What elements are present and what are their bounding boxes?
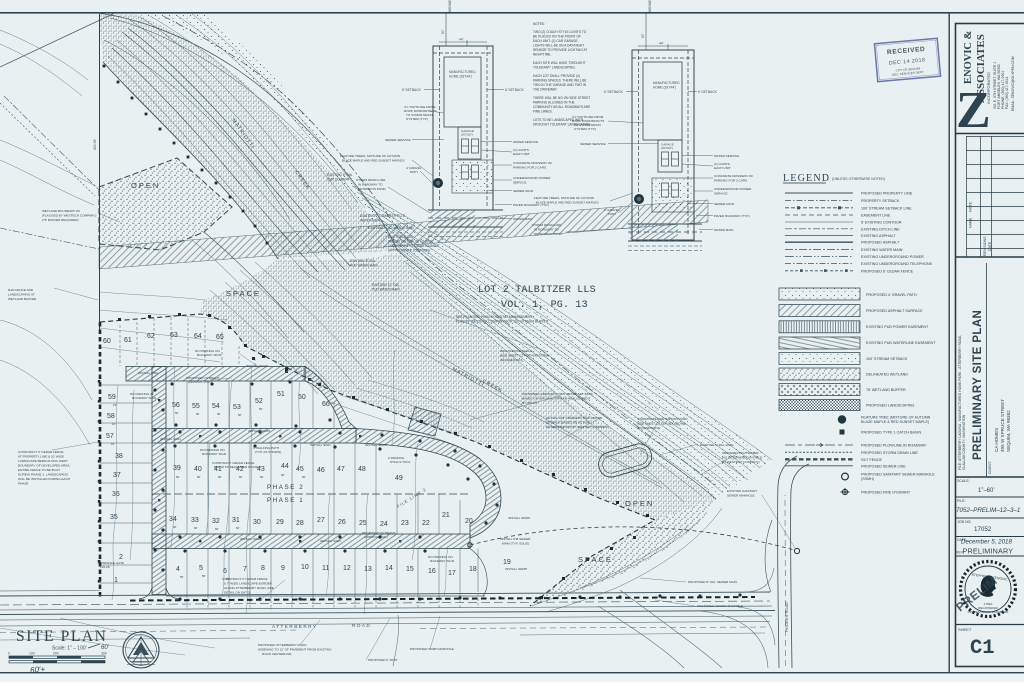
svg-text:50': 50': [217, 412, 221, 416]
svg-text:60': 60': [194, 526, 198, 530]
svg-text:STALLS TOOL: STALLS TOOL: [390, 460, 411, 464]
svg-text:17: 17: [448, 570, 456, 577]
svg-text:INSTALL 8"Ø SEWER: INSTALL 8"Ø SEWER: [500, 537, 531, 541]
svg-text:FIRE LANES.: FIRE LANES.: [533, 110, 553, 114]
svg-text:SITE PLAN: SITE PLAN: [16, 628, 107, 645]
svg-text:HOME (28'X44'): HOME (28'X44'): [653, 86, 676, 90]
svg-text:NIGHTTIME.: NIGHTTIME.: [533, 53, 552, 57]
svg-text:HOOKER ROAD: HOOKER ROAD: [784, 602, 789, 632]
svg-text:PROPOSED FIRE HYDRANT: PROPOSED FIRE HYDRANT: [861, 491, 911, 495]
svg-text:17052: 17052: [974, 526, 992, 533]
svg-text:6' SETBACK: 6' SETBACK: [604, 90, 624, 94]
svg-text:BLAZE MAPLE AND RED SUNSET MAP: BLAZE MAPLE AND RED SUNSET MAPLES: [536, 201, 599, 205]
svg-text:BLAZE MAPLE AND RED SUNSET MAP: BLAZE MAPLE AND RED SUNSET MAPLES: [342, 159, 405, 163]
svg-text:PROPOSED 4' GRAVEL PATH: PROPOSED 4' GRAVEL PATH: [866, 293, 917, 297]
svg-text:EXISTING UNDERGROUND POWER: EXISTING UNDERGROUND POWER: [861, 255, 924, 259]
svg-text:INSTALL SDMH: INSTALL SDMH: [508, 516, 530, 520]
svg-text:PRIOR TO DECEMBER PHASE 2: PRIOR TO DECEMBER PHASE 2: [214, 465, 261, 469]
svg-text:15': 15': [112, 422, 116, 426]
svg-text:THE DRIVEWAY.: THE DRIVEWAY.: [533, 88, 558, 92]
svg-text:PARKING FOR 2 CARS: PARKING FOR 2 CARS: [513, 166, 546, 170]
svg-text:HOME (28'X44'): HOME (28'X44'): [449, 75, 472, 79]
svg-text:60': 60': [236, 526, 240, 530]
svg-text:44: 44: [281, 463, 289, 470]
svg-text:5' EXISTING CONTOUR: 5' EXISTING CONTOUR: [861, 221, 902, 225]
svg-text:SERVICE: SERVICE: [714, 192, 728, 196]
svg-text:60': 60': [197, 475, 201, 479]
svg-text:TOLERANT" LANDSCAPING.: TOLERANT" LANDSCAPING.: [533, 66, 576, 70]
svg-text:WETLAND BOUNDARY #3: WETLAND BOUNDARY #3: [42, 209, 80, 213]
svg-text:18: 18: [469, 566, 477, 573]
svg-text:STORMWATER DETENTION POND: STORMWATER DETENTION POND: [637, 417, 688, 421]
svg-text:47: 47: [337, 466, 345, 473]
svg-text:1”–60’: 1”–60’: [978, 488, 995, 494]
svg-text:INFORMATION): INFORMATION): [500, 358, 522, 362]
svg-text:19: 19: [503, 559, 511, 566]
svg-text:IN ROADWAY TO: IN ROADWAY TO: [358, 183, 383, 187]
svg-text:BY VROUT: BY VROUT: [522, 401, 538, 405]
svg-text:UNDERGROUND POWER: UNDERGROUND POWER: [714, 187, 752, 191]
svg-text:15: 15: [406, 566, 414, 573]
svg-text:EXISTING SANITARY: EXISTING SANITARY: [727, 489, 758, 493]
svg-text:44': 44': [459, 38, 464, 42]
svg-text:9: 9: [281, 565, 285, 572]
svg-text:CLIENT:: CLIENT:: [988, 461, 992, 474]
svg-text:DELINEATED WETLAND: DELINEATED WETLAND: [866, 373, 908, 377]
svg-text:TWO IN THE GARAGE AND TWO IN: TWO IN THE GARAGE AND TWO IN: [533, 83, 587, 87]
svg-text:4: 4: [176, 566, 180, 573]
svg-text:55': 55': [202, 574, 206, 578]
svg-text:20: 20: [465, 518, 473, 525]
svg-text:38: 38: [115, 453, 123, 460]
svg-text:EACH SITE WILL HAVE "DROUGHT: EACH SITE WILL HAVE "DROUGHT: [533, 61, 586, 65]
svg-text:54: 54: [212, 403, 220, 410]
svg-text:495 W SPRUCE STREET: 495 W SPRUCE STREET: [1000, 399, 1005, 452]
svg-text:PROPOSED LANDSCAPING: PROPOSED LANDSCAPING: [866, 404, 914, 408]
svg-text:60': 60': [173, 525, 177, 529]
svg-text:30: 30: [253, 519, 261, 526]
svg-text:PATH: PATH: [410, 170, 418, 174]
svg-text:SEWER SERVICE: SEWER SERVICE: [580, 142, 606, 146]
svg-text:CONSTRUCT 6' CEDAR FENCE: CONSTRUCT 6' CEDAR FENCE: [222, 577, 268, 581]
svg-text:49: 49: [395, 475, 403, 482]
svg-text:10: 10: [301, 564, 309, 571]
svg-text:40: 40: [194, 466, 202, 473]
svg-text:ACTUAL 100' ORDINARY HIGH WATE: ACTUAL 100' ORDINARY HIGH WATER: [546, 416, 603, 420]
svg-text:28: 28: [296, 520, 304, 527]
svg-text:60': 60': [441, 29, 445, 34]
svg-text:0: 0: [8, 652, 10, 656]
svg-text:50': 50': [196, 412, 200, 416]
svg-text:OPEN: OPEN: [625, 499, 654, 508]
svg-text:(UNLESS OTHERWISE NOTED): (UNLESS OTHERWISE NOTED): [832, 177, 885, 181]
svg-text:PROPOSED 6' CEDAR FENCE: PROPOSED 6' CEDAR FENCE: [861, 269, 914, 273]
svg-text:60': 60': [239, 475, 243, 479]
svg-text:(SSMH): (SSMH): [861, 477, 874, 481]
svg-text:29: 29: [276, 519, 284, 526]
svg-text:BOUNDARY OF DEVELOPED AREA.: BOUNDARY OF DEVELOPED AREA.: [18, 464, 70, 468]
svg-text:60': 60': [101, 645, 110, 651]
svg-text:INFILTRATION SWALE: INFILTRATION SWALE: [500, 349, 532, 353]
svg-text:6' SETBACK: 6' SETBACK: [505, 88, 525, 92]
svg-text:PARKING FOR 2 CARS: PARKING FOR 2 CARS: [714, 179, 747, 183]
svg-text:& 7' WIDE LANDSCAPE BORDER: & 7' WIDE LANDSCAPE BORDER: [224, 582, 273, 586]
svg-text:60': 60': [218, 475, 222, 479]
svg-text:ROADWAY SIGN: ROADWAY SIGN: [197, 353, 221, 357]
svg-text:SPACE: SPACE: [226, 289, 261, 298]
svg-text:(APPROX. LOC.): (APPROX. LOC.): [188, 380, 212, 384]
svg-text:60': 60': [260, 475, 264, 479]
svg-text:SENSOR TO PROVIDE LIGHTING AT: SENSOR TO PROVIDE LIGHTING AT: [533, 48, 587, 52]
svg-text:12: 12: [343, 565, 351, 572]
svg-text:PRELIMINARY SITE PLAN: PRELIMINARY SITE PLAN: [972, 310, 984, 460]
svg-text:BLAZE MAPLE & RED SUNSET MAPLE: BLAZE MAPLE & RED SUNSET MAPLE): [861, 420, 929, 424]
svg-text:7052–PRELIM–12–3–1: 7052–PRELIM–12–3–1: [956, 507, 1020, 514]
svg-text:WIDENING TO 12' OF PAVEMENT FR: WIDENING TO 12' OF PAVEMENT FROM EXISTIN…: [258, 648, 332, 652]
svg-text:EACH UNIT. (1) CAR GARAGE.: EACH UNIT. (1) CAR GARAGE.: [533, 39, 579, 43]
svg-text:66: 66: [322, 401, 330, 408]
svg-text:100' STREAM SETBACK: 100' STREAM SETBACK: [866, 357, 908, 361]
svg-text:PROPOSED SANITARY SEWER MANHOL: PROPOSED SANITARY SEWER MANHOLE: [861, 473, 935, 477]
svg-text:36: 36: [112, 491, 120, 498]
svg-text:LEGEND: LEGEND: [783, 173, 830, 184]
svg-text:WATER SERVICE: WATER SERVICE: [714, 154, 739, 158]
svg-text:SEWER MAIN: SEWER MAIN: [513, 189, 533, 193]
svg-text:INSTALL SDMH: INSTALL SDMH: [365, 443, 387, 447]
svg-text:60: 60: [103, 338, 111, 345]
svg-text:300: 300: [101, 652, 107, 656]
svg-text:PROPOSED ASPHALT: PROPOSED ASPHALT: [861, 241, 900, 245]
svg-text:ALONG ATTERBERRY ROAD (SEE: ALONG ATTERBERRY ROAD (SEE: [224, 586, 274, 590]
svg-text:COMMUNITY AS ALL ROADWAYS ARE: COMMUNITY AS ALL ROADWAYS ARE: [533, 105, 590, 109]
svg-text:BY WESTECH COMPANY): BY WESTECH COMPANY): [722, 460, 760, 464]
svg-text:PRELIMINARY: PRELIMINARY: [963, 547, 1014, 556]
svg-text:SEWER MANHOLE: SEWER MANHOLE: [727, 494, 755, 498]
svg-text:24: 24: [380, 521, 388, 528]
svg-text:430.59': 430.59': [93, 139, 97, 150]
svg-text:PHASE 1: PHASE 1: [267, 497, 304, 504]
svg-text:60': 60': [281, 473, 285, 477]
svg-text:PROPOSED 8" DIA. SEWER MAIN: PROPOSED 8" DIA. SEWER MAIN: [688, 580, 737, 584]
svg-text:(20'X20'): (20'X20'): [461, 133, 473, 137]
svg-text:27: 27: [317, 517, 325, 524]
svg-text:PROPOSED SEWER LINE: PROPOSED SEWER LINE: [861, 464, 906, 468]
svg-text:INCORPORATED: INCORPORATED: [986, 72, 991, 104]
svg-text:LOTS TO BE LANDSCAPED WITH: LOTS TO BE LANDSCAPED WITH: [533, 118, 584, 122]
svg-text:50': 50': [238, 413, 242, 417]
svg-text:INSTALL SIGN: INSTALL SIGN: [310, 443, 331, 447]
svg-text:EASEMENT LINE: EASEMENT LINE: [861, 214, 891, 218]
svg-text:31: 31: [232, 517, 240, 524]
svg-text:EXISTING PUD WATERLINE EASEMEN: EXISTING PUD WATERLINE EASEMENT: [866, 341, 936, 345]
svg-text:LANDSCAPING AT: LANDSCAPING AT: [8, 293, 35, 297]
svg-text:PHASE 2: PHASE 2: [267, 484, 304, 491]
svg-text:55': 55': [180, 575, 184, 579]
svg-text:(SEE SHEET C2 FOR ADDITIONAL: (SEE SHEET C2 FOR ADDITIONAL: [500, 354, 550, 358]
svg-text:46: 46: [317, 467, 325, 474]
svg-text:64: 64: [194, 333, 202, 340]
svg-text:34: 34: [169, 516, 177, 523]
svg-text:CONSTRUCT 6' CEDAR FENCE: CONSTRUCT 6' CEDAR FENCE: [18, 450, 64, 454]
svg-text:FEATURE TREES, MIXTURE OF AUTU: FEATURE TREES, MIXTURE OF AUTUMN: [340, 154, 400, 158]
svg-text:50': 50': [259, 407, 263, 411]
svg-text:MANUFACTURED: MANUFACTURED: [653, 81, 680, 85]
svg-text:NOTES:: NOTES:: [533, 22, 545, 26]
svg-text:51: 51: [277, 391, 285, 398]
svg-text:56: 56: [172, 402, 180, 409]
svg-text:EXISTING 5" DIA. CMP: EXISTING 5" DIA. CMP: [700, 443, 733, 447]
svg-text:35: 35: [110, 514, 118, 521]
svg-text:15': 15': [111, 442, 115, 446]
svg-text:ENTIRE FENCE TO BE BUILT: ENTIRE FENCE TO BE BUILT: [18, 468, 60, 472]
svg-text:7: 7: [243, 566, 247, 573]
svg-text:PARKING ALLOWED IN THE: PARKING ALLOWED IN THE: [533, 101, 575, 105]
svg-text:CLALLAM COUNTY, WASHINGTON: CLALLAM COUNTY, WASHINGTON: [962, 414, 966, 470]
svg-text:PROPOSED SDMH MANHOLE: PROPOSED SDMH MANHOLE: [410, 647, 454, 651]
svg-text:PROPOSED PLOWLINE IN ROADWAY: PROPOSED PLOWLINE IN ROADWAY: [861, 444, 927, 448]
svg-text:PAVED ROADWAY (TYP.): PAVED ROADWAY (TYP.): [714, 214, 750, 218]
svg-text:8: 8: [261, 565, 265, 572]
svg-text:OPEN: OPEN: [131, 181, 160, 190]
svg-text:EXISTING PUD POWER EASEMENT: EXISTING PUD POWER EASEMENT: [866, 325, 929, 329]
svg-text:1: 1: [114, 577, 118, 584]
svg-text:PROPOSED ORDINARY HIGH WATER S: PROPOSED ORDINARY HIGH WATER SET BACK: [522, 392, 594, 396]
svg-text:55: 55: [192, 403, 200, 410]
svg-text:63: 63: [170, 332, 178, 339]
svg-text:44': 44': [659, 42, 664, 46]
svg-text:INSTALL SIGN: INSTALL SIGN: [160, 437, 181, 441]
svg-text:ORDINARY HIGH WATER: ORDINARY HIGH WATER: [722, 451, 759, 455]
svg-text:PROPERTY SETBACK: PROPERTY SETBACK: [861, 199, 900, 203]
svg-text:TWO (2) COACH STYLE LIGHTS TO: TWO (2) COACH STYLE LIGHTS TO: [533, 30, 587, 34]
svg-text:PROPOSED STORM DRAIN LINE: PROPOSED STORM DRAIN LINE: [861, 451, 918, 455]
svg-text:LIGHTS WILL BE ON A DAY/NIGHT: LIGHTS WILL BE ON A DAY/NIGHT: [533, 44, 584, 48]
svg-text:UNDERGROUND POWER: UNDERGROUND POWER: [513, 176, 551, 180]
svg-text:58: 58: [107, 413, 115, 420]
svg-text:15': 15': [113, 403, 117, 407]
svg-text:WILL BE INSTALLED DURING EACH: WILL BE INSTALLED DURING EACH: [18, 477, 70, 481]
svg-text:EXISTING UNDERGROUND TELEPHONE: EXISTING UNDERGROUND TELEPHONE: [861, 262, 933, 266]
svg-text:MAIN (TYP. SOLID): MAIN (TYP. SOLID): [502, 542, 529, 546]
svg-text:SEQUIM, WA 98382: SEQUIM, WA 98382: [1006, 410, 1011, 452]
svg-text:16: 16: [428, 568, 436, 575]
svg-text:22: 22: [422, 520, 430, 527]
svg-text:WATER SERVICE: WATER SERVICE: [513, 140, 538, 144]
svg-text:INSTALL SDMH: INSTALL SDMH: [505, 567, 527, 571]
svg-text:FAX: (360) 417-0514: FAX: (360) 417-0514: [1005, 76, 1009, 109]
svg-text:62: 62: [147, 333, 155, 340]
svg-text:33: 33: [191, 517, 199, 524]
svg-text:100' STREAM SETBACK LINE: 100' STREAM SETBACK LINE: [861, 206, 912, 210]
svg-text:LANDSCAPE BERM ALONG WEST: LANDSCAPE BERM ALONG WEST: [18, 459, 68, 463]
svg-text:SERVICE: SERVICE: [513, 181, 527, 185]
svg-text:INSTALL 5300: INSTALL 5300: [138, 371, 158, 375]
svg-text:PROPOSED 5' PATH: PROPOSED 5' PATH: [368, 658, 397, 662]
svg-text:32: 32: [212, 518, 220, 525]
svg-text:DETAIL ON SHT 3): DETAIL ON SHT 3): [224, 591, 251, 595]
svg-text:5' SETBACK: 5' SETBACK: [402, 88, 422, 92]
svg-text:FEATURE TREE (MIXTURE OF AUTUM: FEATURE TREE (MIXTURE OF AUTUMN: [861, 416, 931, 420]
svg-text:FEATURE TREES, MIXTURE OF AUTU: FEATURE TREES, MIXTURE OF AUTUMN: [534, 196, 594, 200]
svg-text:EACH UNIT: EACH UNIT: [714, 166, 731, 170]
svg-text:(FLAGGED BY WESTECH COMPANY): (FLAGGED BY WESTECH COMPANY): [42, 214, 96, 218]
svg-text:PHASE: PHASE: [18, 482, 29, 486]
svg-text:23: 23: [401, 520, 409, 527]
svg-text:SPACE: SPACE: [578, 555, 613, 564]
svg-text:NAME: NAME: [969, 217, 973, 228]
svg-text:(APPROX. LOC.): (APPROX. LOC.): [364, 535, 388, 539]
svg-text:52: 52: [255, 398, 263, 405]
svg-text:60': 60': [641, 33, 645, 38]
svg-text:INSTALL SIGN: INSTALL SIGN: [320, 539, 341, 543]
svg-text:60′+: 60′+: [30, 665, 46, 675]
svg-text:ENOVIC &: ENOVIC &: [963, 30, 974, 84]
svg-text:53: 53: [233, 404, 241, 411]
svg-text:61: 61: [124, 337, 132, 344]
svg-text:EXISTING WATER MAIN: EXISTING WATER MAIN: [861, 248, 903, 252]
svg-text:NOTE: NOTE: [969, 201, 973, 212]
svg-text:DETERMINATION BY WESTECH COMPA: DETERMINATION BY WESTECH COMPANY: [546, 425, 609, 429]
svg-text:50': 50': [175, 411, 179, 415]
svg-text:6: 6: [223, 568, 227, 575]
svg-text:EXISTING ASPHALT: EXISTING ASPHALT: [861, 234, 896, 238]
svg-text:EMAIL: ZENOVIC@OLYPEN.COM: EMAIL: ZENOVIC@OLYPEN.COM: [1011, 56, 1015, 111]
svg-text:WETLAND BUFFER: WETLAND BUFFER: [8, 297, 37, 301]
svg-text:60': 60': [176, 475, 180, 479]
svg-text:MANUFACTURED: MANUFACTURED: [449, 70, 476, 74]
svg-text:INSTALL SSMH: INSTALL SSMH: [240, 537, 262, 541]
svg-text:PROPOSED ASPHALT SURFACE: PROPOSED ASPHALT SURFACE: [866, 309, 923, 313]
svg-text:125.26': 125.26': [100, 565, 110, 569]
svg-text:CONCRETE DRIVEWAY W/: CONCRETE DRIVEWAY W/: [513, 161, 552, 165]
svg-text:CA HOMES: CA HOMES: [994, 428, 999, 452]
svg-text:2: 2: [119, 554, 123, 561]
svg-text:DROUGHT TOLERANT LANDSCAPING.: DROUGHT TOLERANT LANDSCAPING.: [533, 123, 592, 127]
svg-text:KENNELS AV: KENNELS AV: [448, 0, 452, 12]
svg-text:BE PLACED ON THE FRONT OF: BE PLACED ON THE FRONT OF: [533, 35, 581, 39]
svg-text:100: 100: [29, 652, 35, 656]
svg-text:FILE:: FILE:: [957, 499, 966, 503]
svg-text:57: 57: [106, 433, 114, 440]
svg-text:39: 39: [173, 465, 181, 472]
svg-text:13: 13: [364, 566, 372, 573]
svg-text:ATTERBERRY: ATTERBERRY: [272, 624, 317, 629]
svg-text:ROAD: ROAD: [352, 623, 371, 628]
svg-text:48: 48: [358, 466, 366, 473]
svg-text:(TYP. AS SHOWN): (TYP. AS SHOWN): [255, 450, 281, 454]
svg-text:DETENTION POND: DETENTION POND: [358, 187, 386, 191]
svg-text:CONCRETE DRIVEWAY W/: CONCRETE DRIVEWAY W/: [714, 174, 753, 178]
svg-text:65: 65: [216, 334, 224, 341]
svg-text:SHEET: SHEET: [958, 627, 972, 632]
svg-text:PROPOSED SEWER MANHOLE: PROPOSED SEWER MANHOLE: [697, 604, 743, 608]
svg-text:14: 14: [385, 565, 393, 572]
svg-text:PARKING SPACES. THERE WILL BE: PARKING SPACES. THERE WILL BE: [533, 79, 587, 83]
svg-text:SETBACK BASED ON ACTUAL: SETBACK BASED ON ACTUAL: [546, 421, 590, 425]
svg-text:EXISTING DITCH LINE: EXISTING DITCH LINE: [861, 227, 900, 231]
svg-text:PROFESSIONAL SURVEYOR: PROFESSIONAL SURVEYOR: [968, 610, 1010, 614]
svg-text:SYSTEM (TYP.): SYSTEM (TYP.): [574, 127, 596, 131]
svg-text:ROAD CENTERLINE: ROAD CENTERLINE: [262, 652, 291, 656]
svg-text:25: 25: [359, 520, 367, 527]
svg-text:ROADWAY SIGN: ROADWAY SIGN: [430, 559, 454, 563]
svg-text:RAD FENCE AND: RAD FENCE AND: [8, 288, 34, 292]
svg-text:SILT FENCE: SILT FENCE: [861, 458, 883, 462]
svg-text:DATE: DATE: [988, 241, 992, 251]
svg-text:PROPOSED TYPE 1 CATCH BASIN: PROPOSED TYPE 1 CATCH BASIN: [861, 431, 921, 435]
svg-text:PROPOSED PROPERTY LINE: PROPOSED PROPERTY LINE: [861, 192, 913, 196]
svg-text:WATER MAIN: WATER MAIN: [714, 228, 733, 232]
svg-text:C1: C1: [970, 637, 995, 660]
svg-text:December 5, 2018: December 5, 2018: [961, 539, 1012, 546]
svg-text:60': 60': [215, 527, 219, 531]
svg-text:EACH LOT SHALL PROVIDE (4): EACH LOT SHALL PROVIDE (4): [533, 74, 580, 78]
svg-text:INSTALL SDMH: INSTALL SDMH: [248, 429, 270, 433]
svg-text:KENNELS AV: KENNELS AV: [648, 0, 652, 12]
svg-text:5: 5: [199, 565, 203, 572]
svg-text:21: 21: [442, 512, 450, 519]
svg-text:REVISIONS: REVISIONS: [983, 236, 987, 256]
svg-text:SEWER SERVICE: SEWER SERVICE: [385, 138, 411, 142]
svg-text:AT PROPERTY LINE & 10' WIDE: AT PROPERTY LINE & 10' WIDE: [18, 455, 64, 459]
svg-text:75' WETLAND BUFFER: 75' WETLAND BUFFER: [866, 388, 906, 392]
svg-text:6' SETBACK: 6' SETBACK: [698, 90, 718, 94]
svg-text:ROADWAY SIGN: ROADWAY SIGN: [202, 452, 226, 456]
svg-text:45: 45: [296, 466, 304, 473]
svg-text:SCALE:: SCALE:: [957, 479, 970, 483]
svg-text:EACH UNIT: EACH UNIT: [513, 152, 530, 156]
svg-text:(SEE SHEET C2 FOR ADDITIONAL: (SEE SHEET C2 FOR ADDITIONAL: [637, 422, 687, 426]
svg-text:SYSTEM (TYP.): SYSTEM (TYP.): [406, 117, 428, 121]
svg-text:JOB NO:: JOB NO:: [957, 520, 971, 524]
svg-text:THERE WILL BE NO ON SIDE STREE: THERE WILL BE NO ON SIDE STREET: [533, 96, 590, 100]
svg-text:59: 59: [108, 394, 116, 401]
svg-text:200: 200: [53, 652, 59, 656]
svg-text:60': 60': [302, 475, 306, 479]
svg-text:SEWER MAIN: SEWER MAIN: [714, 202, 734, 206]
svg-text:PROPOSED ATTERBERRY ROAD: PROPOSED ATTERBERRY ROAD: [258, 643, 307, 647]
svg-text:(75' BUFFER REQUIRED): (75' BUFFER REQUIRED): [42, 218, 79, 222]
svg-text:DURING PHASE 1. LANDSCAPING: DURING PHASE 1. LANDSCAPING: [18, 473, 69, 477]
svg-text:(20'X20'): (20'X20'): [661, 146, 673, 150]
svg-text:26: 26: [338, 519, 346, 526]
svg-text:INFORMATION): INFORMATION): [637, 426, 659, 430]
svg-text:ROADWAY SIGN: ROADWAY SIGN: [132, 396, 156, 400]
